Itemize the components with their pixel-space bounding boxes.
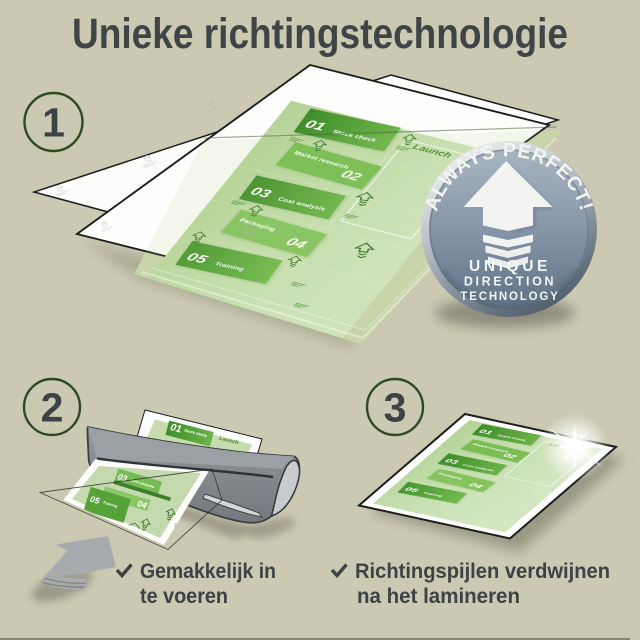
svg-text:UNIQUE: UNIQUE <box>469 258 551 275</box>
svg-text:Gemakkelijk in: Gemakkelijk in <box>140 559 276 583</box>
svg-text:3: 3 <box>384 385 407 431</box>
svg-text:1: 1 <box>42 100 65 146</box>
svg-text:DIRECTION: DIRECTION <box>464 275 556 289</box>
svg-text:Unieke richtingstechnologie: Unieke richtingstechnologie <box>72 10 568 58</box>
svg-text:Richtingspijlen verdwijnen: Richtingspijlen verdwijnen <box>355 559 610 583</box>
svg-text:TECHNOLOGY: TECHNOLOGY <box>460 291 559 303</box>
svg-text:te voeren: te voeren <box>140 584 228 608</box>
svg-text:2: 2 <box>41 385 64 431</box>
svg-text:na het lamineren: na het lamineren <box>357 584 520 608</box>
